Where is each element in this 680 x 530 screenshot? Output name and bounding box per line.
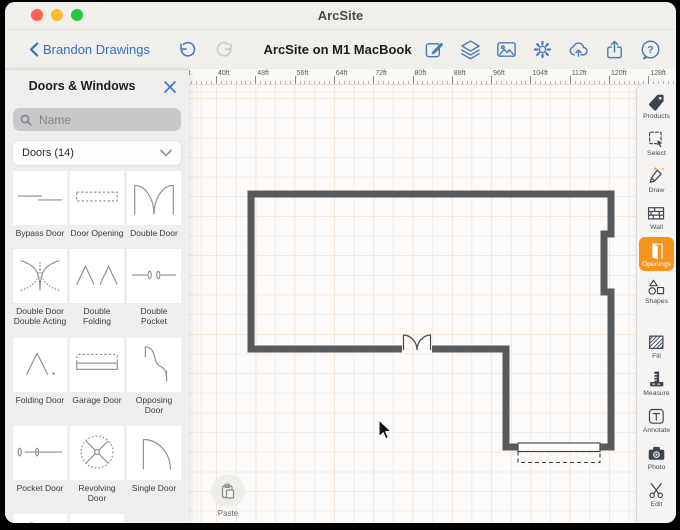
ruler-minor-tick: [314, 81, 315, 84]
door-opening-icon: [70, 171, 124, 225]
image-icon[interactable]: [495, 38, 518, 61]
ruler-minor-tick: [481, 81, 482, 84]
toolbar: Brandon Drawings ArcSite on M1 MacBook ?: [5, 30, 676, 70]
door-tile-single-door[interactable]: Single Door: [127, 426, 181, 503]
ruler-minor-tick: [545, 81, 546, 84]
ruler-minor-tick: [599, 81, 600, 84]
ruler-minor-tick: [236, 81, 237, 84]
ruler-minor-tick: [634, 81, 635, 84]
ruler-minor-tick: [358, 81, 359, 84]
door-tile-bypass-door[interactable]: Bypass Door: [13, 171, 67, 238]
single-door-icon: [127, 426, 181, 480]
door-tile-revolving-door[interactable]: Revolving Door: [70, 426, 124, 503]
ruler-minor-tick: [368, 81, 369, 84]
ruler-minor-tick: [245, 81, 246, 84]
ruler-minor-tick: [344, 81, 345, 84]
ruler-label: 56ft: [297, 70, 309, 77]
ruler-minor-tick: [211, 81, 212, 84]
ruler-minor-tick: [540, 81, 541, 84]
paste-button-label: Paste: [192, 509, 264, 518]
folding-door-icon: [13, 338, 67, 392]
close-icon: [163, 80, 177, 94]
measure-ruler-icon: [646, 369, 667, 389]
edit-scissors-icon: [646, 480, 667, 500]
door-tile-label: Bypass Door: [13, 228, 67, 238]
tool-fill[interactable]: Fill: [639, 329, 674, 363]
chevron-down-icon: [160, 149, 172, 157]
tool-label: Photo: [648, 464, 666, 471]
select-marquee-icon: [646, 129, 667, 149]
door-tile-label: Door Opening: [70, 228, 124, 238]
double-pocket-icon: [127, 249, 181, 303]
ruler-minor-tick: [516, 81, 517, 84]
cloud-upload-icon[interactable]: [567, 38, 590, 61]
garage-door-icon: [70, 338, 124, 392]
tool-measure[interactable]: Measure: [639, 366, 674, 400]
redo-icon[interactable]: [214, 39, 236, 61]
layers-icon[interactable]: [459, 38, 482, 61]
door-tile-label: Garage Door: [70, 395, 124, 405]
bypass-door-icon: [13, 171, 67, 225]
tool-draw[interactable]: Draw: [639, 163, 674, 197]
ruler-minor-tick: [432, 81, 433, 84]
ruler-label: 72ft: [375, 70, 387, 77]
tool-label: Annotate: [643, 427, 670, 434]
ruler: 32ft40ft48ft56ft64ft72ft80ft88ft96ft104f…: [175, 69, 676, 85]
ruler-minor-tick: [285, 81, 286, 84]
door-tile-label: Single Door: [127, 483, 181, 493]
tool-label: Fill: [652, 353, 661, 360]
titlebar: ArcSite: [5, 2, 676, 30]
ruler-minor-tick: [304, 81, 305, 84]
ruler-minor-tick: [191, 81, 192, 84]
search-field[interactable]: [13, 108, 181, 131]
ruler-major-tick: [452, 76, 453, 84]
door-tile-double-pocket[interactable]: Double Pocket: [127, 249, 181, 326]
undo-icon[interactable]: [176, 39, 198, 61]
svg-text:?: ?: [647, 44, 653, 56]
ruler-minor-tick: [339, 81, 340, 84]
search-input[interactable]: [37, 112, 174, 128]
ruler-major-tick: [373, 76, 374, 84]
ruler-minor-tick: [300, 81, 301, 84]
toolbar-actions: ?: [423, 38, 676, 61]
door-tile-double-door-double-acting[interactable]: Double Door Double Acting: [13, 249, 67, 326]
ruler-label: 88ft: [454, 70, 466, 77]
double-door-double-acting-icon: [13, 249, 67, 303]
door-tile-label: Revolving Door: [70, 483, 124, 503]
tool-label: Measure: [643, 390, 669, 397]
uneven-double-door-icon: [70, 514, 124, 523]
ruler-minor-tick: [417, 81, 418, 84]
ruler-minor-tick: [555, 81, 556, 84]
ruler-minor-tick: [584, 81, 585, 84]
door-tile-uneven-double-door[interactable]: [70, 514, 124, 523]
shapes-icon: [646, 277, 667, 297]
ruler-label: 120ft: [611, 70, 627, 77]
ruler-major-tick: [216, 76, 217, 84]
ruler-minor-tick: [408, 81, 409, 84]
tool-products[interactable]: Products: [639, 89, 674, 123]
clipboard-icon: [220, 483, 236, 500]
ruler-minor-tick: [250, 81, 251, 84]
revolving-door-icon: [70, 426, 124, 480]
ruler-minor-tick: [476, 81, 477, 84]
help-icon[interactable]: ?: [639, 38, 662, 61]
ruler-minor-tick: [206, 81, 207, 84]
door-tile-label: Opposing Door: [127, 395, 181, 415]
ruler-major-tick: [609, 76, 610, 84]
ruler-minor-tick: [363, 81, 364, 84]
tool-label: Select: [647, 150, 666, 157]
tool-label: Openings: [642, 261, 671, 268]
ruler-minor-tick: [403, 81, 404, 84]
ruler-minor-tick: [280, 81, 281, 84]
ruler-minor-tick: [349, 81, 350, 84]
door-tile-folding-door[interactable]: Folding Door: [13, 338, 67, 415]
category-dropdown-label: Doors (14): [22, 147, 160, 159]
ruler-minor-tick: [521, 81, 522, 84]
panel-header: Doors & Windows: [5, 70, 189, 104]
ruler-minor-tick: [309, 81, 310, 84]
door-tile-door-opening[interactable]: Door Opening: [70, 171, 124, 238]
ruler-minor-tick: [638, 81, 639, 84]
ruler-minor-tick: [221, 81, 222, 84]
double-door-icon: [127, 171, 181, 225]
ruler-minor-tick: [196, 81, 197, 84]
ruler-minor-tick: [231, 81, 232, 84]
document-title: ArcSite on M1 MacBook: [263, 42, 411, 57]
ruler-major-tick: [570, 76, 571, 84]
settings-gear-icon[interactable]: [531, 38, 554, 61]
back-label: Brandon Drawings: [43, 42, 150, 57]
tool-wall[interactable]: Wall: [639, 200, 674, 234]
app-window: ArcSite Brandon Drawings ArcSite on M1 M…: [5, 2, 676, 523]
ruler-minor-tick: [589, 81, 590, 84]
compose-icon[interactable]: [423, 38, 446, 61]
ruler-minor-tick: [201, 81, 202, 84]
ruler-minor-tick: [535, 81, 536, 84]
ruler-minor-tick: [437, 81, 438, 84]
tool-select[interactable]: Select: [639, 126, 674, 160]
ruler-label: 48ft: [257, 70, 269, 77]
ruler-minor-tick: [511, 81, 512, 84]
ruler-minor-tick: [506, 81, 507, 84]
double-folding-icon: [70, 249, 124, 303]
single-door-double-acting-icon: [13, 514, 67, 523]
ruler-major-tick: [491, 76, 492, 84]
door-tile-opposing-door[interactable]: Opposing Door: [127, 338, 181, 415]
panel-title: Doors & Windows: [5, 79, 159, 93]
door-tile-label: Double Folding: [70, 306, 124, 326]
ruler-minor-tick: [354, 81, 355, 84]
ruler-minor-tick: [260, 81, 261, 84]
ruler-major-tick: [295, 76, 296, 84]
ruler-minor-tick: [575, 81, 576, 84]
door-tile-label: Double Door Double Acting: [13, 306, 67, 326]
doors-windows-panel: Doors & Windows Doors (14) Bypass DoorDo…: [5, 69, 189, 523]
ruler-minor-tick: [560, 81, 561, 84]
ruler-minor-tick: [226, 81, 227, 84]
tool-group-divider: [637, 311, 676, 329]
ruler-minor-tick: [604, 81, 605, 84]
ruler-major-tick: [334, 76, 335, 84]
walls[interactable]: [251, 194, 611, 447]
door-tile-single-door-double-acting[interactable]: [13, 514, 67, 523]
mouse-cursor: [379, 420, 391, 439]
door-tile-label: Double Pocket: [127, 306, 181, 326]
ruler-minor-tick: [525, 81, 526, 84]
chevron-left-icon: [29, 42, 39, 57]
ruler-minor-tick: [393, 81, 394, 84]
fill-hatch-icon: [646, 332, 667, 352]
ruler-minor-tick: [422, 81, 423, 84]
ruler-minor-tick: [447, 81, 448, 84]
ruler-minor-tick: [270, 81, 271, 84]
tool-label: Shapes: [645, 298, 668, 305]
ruler-minor-tick: [324, 81, 325, 84]
products-tag-icon: [646, 92, 667, 112]
floor-plan[interactable]: [189, 84, 676, 523]
door-tile-garage-door[interactable]: Garage Door: [70, 338, 124, 415]
ruler-label: 104ft: [532, 70, 548, 77]
ruler-label: 40ft: [218, 70, 230, 77]
ruler-minor-tick: [275, 81, 276, 84]
ruler-major-tick: [255, 76, 256, 84]
annotate-text-icon: [646, 406, 667, 426]
tool-sidebar: ProductsSelectDrawWallOpeningsShapesFill…: [636, 84, 676, 523]
ruler-minor-tick: [442, 81, 443, 84]
double-door-symbol[interactable]: [404, 335, 431, 350]
door-tile-pocket-door[interactable]: Pocket Door: [13, 426, 67, 503]
ruler-minor-tick: [383, 81, 384, 84]
ruler-minor-tick: [290, 81, 291, 84]
ruler-minor-tick: [467, 81, 468, 84]
tool-openings[interactable]: Openings: [639, 237, 674, 271]
ruler-label: 64ft: [336, 70, 348, 77]
door-tile-double-door[interactable]: Double Door: [127, 171, 181, 238]
ruler-minor-tick: [462, 81, 463, 84]
ruler-minor-tick: [427, 81, 428, 84]
ruler-major-tick: [648, 76, 649, 84]
ruler-minor-tick: [594, 81, 595, 84]
ruler-minor-tick: [629, 81, 630, 84]
door-tile-double-folding[interactable]: Double Folding: [70, 249, 124, 326]
share-icon[interactable]: [603, 38, 626, 61]
ruler-minor-tick: [319, 81, 320, 84]
garage-door-symbol[interactable]: [518, 443, 600, 463]
ruler-minor-tick: [614, 81, 615, 84]
ruler-label: 112ft: [572, 70, 587, 77]
ruler-minor-tick: [550, 81, 551, 84]
category-dropdown[interactable]: Doors (14): [13, 141, 181, 165]
tool-label: Products: [643, 113, 670, 120]
tool-edit[interactable]: Edit: [639, 477, 674, 511]
ruler-minor-tick: [486, 81, 487, 84]
ruler-minor-tick: [580, 81, 581, 84]
close-panel-button[interactable]: [160, 77, 180, 97]
drawing-canvas[interactable]: Paste: [189, 84, 676, 523]
window-title: ArcSite: [5, 8, 676, 23]
ruler-label: 128ft: [650, 70, 666, 77]
ruler-minor-tick: [398, 81, 399, 84]
paste-button[interactable]: [212, 475, 244, 507]
tool-annotate[interactable]: Annotate: [639, 403, 674, 437]
pocket-door-icon: [13, 426, 67, 480]
door-tile-label: Pocket Door: [13, 483, 67, 493]
ruler-minor-tick: [388, 81, 389, 84]
ruler-minor-tick: [241, 81, 242, 84]
ruler-major-tick: [530, 76, 531, 84]
tool-shapes[interactable]: Shapes: [639, 274, 674, 308]
ruler-minor-tick: [378, 81, 379, 84]
ruler-minor-tick: [624, 81, 625, 84]
tool-label: Draw: [649, 187, 665, 194]
ruler-label: 80ft: [415, 70, 427, 77]
back-button[interactable]: Brandon Drawings: [29, 42, 150, 57]
door-open-icon: [646, 240, 667, 260]
ruler-minor-tick: [496, 81, 497, 84]
ruler-label: 96ft: [493, 70, 505, 77]
door-tile-label: Folding Door: [13, 395, 67, 405]
door-tile-grid: Bypass DoorDoor OpeningDouble DoorDouble…: [13, 171, 181, 523]
search-icon: [20, 114, 32, 126]
ruler-minor-tick: [457, 81, 458, 84]
door-tile-label: Double Door: [127, 228, 181, 238]
wall-bricks-icon: [646, 203, 667, 223]
tool-label: Edit: [651, 501, 663, 508]
draw-pen-icon: [646, 166, 667, 186]
ruler-minor-tick: [619, 81, 620, 84]
ruler-minor-tick: [501, 81, 502, 84]
tool-label: Wall: [650, 224, 663, 231]
ruler-minor-tick: [471, 81, 472, 84]
ruler-minor-tick: [265, 81, 266, 84]
ruler-major-tick: [413, 76, 414, 84]
opposing-door-icon: [127, 338, 181, 392]
photo-camera-icon: [646, 443, 667, 463]
ruler-minor-tick: [565, 81, 566, 84]
ruler-minor-tick: [329, 81, 330, 84]
tool-photo[interactable]: Photo: [639, 440, 674, 474]
